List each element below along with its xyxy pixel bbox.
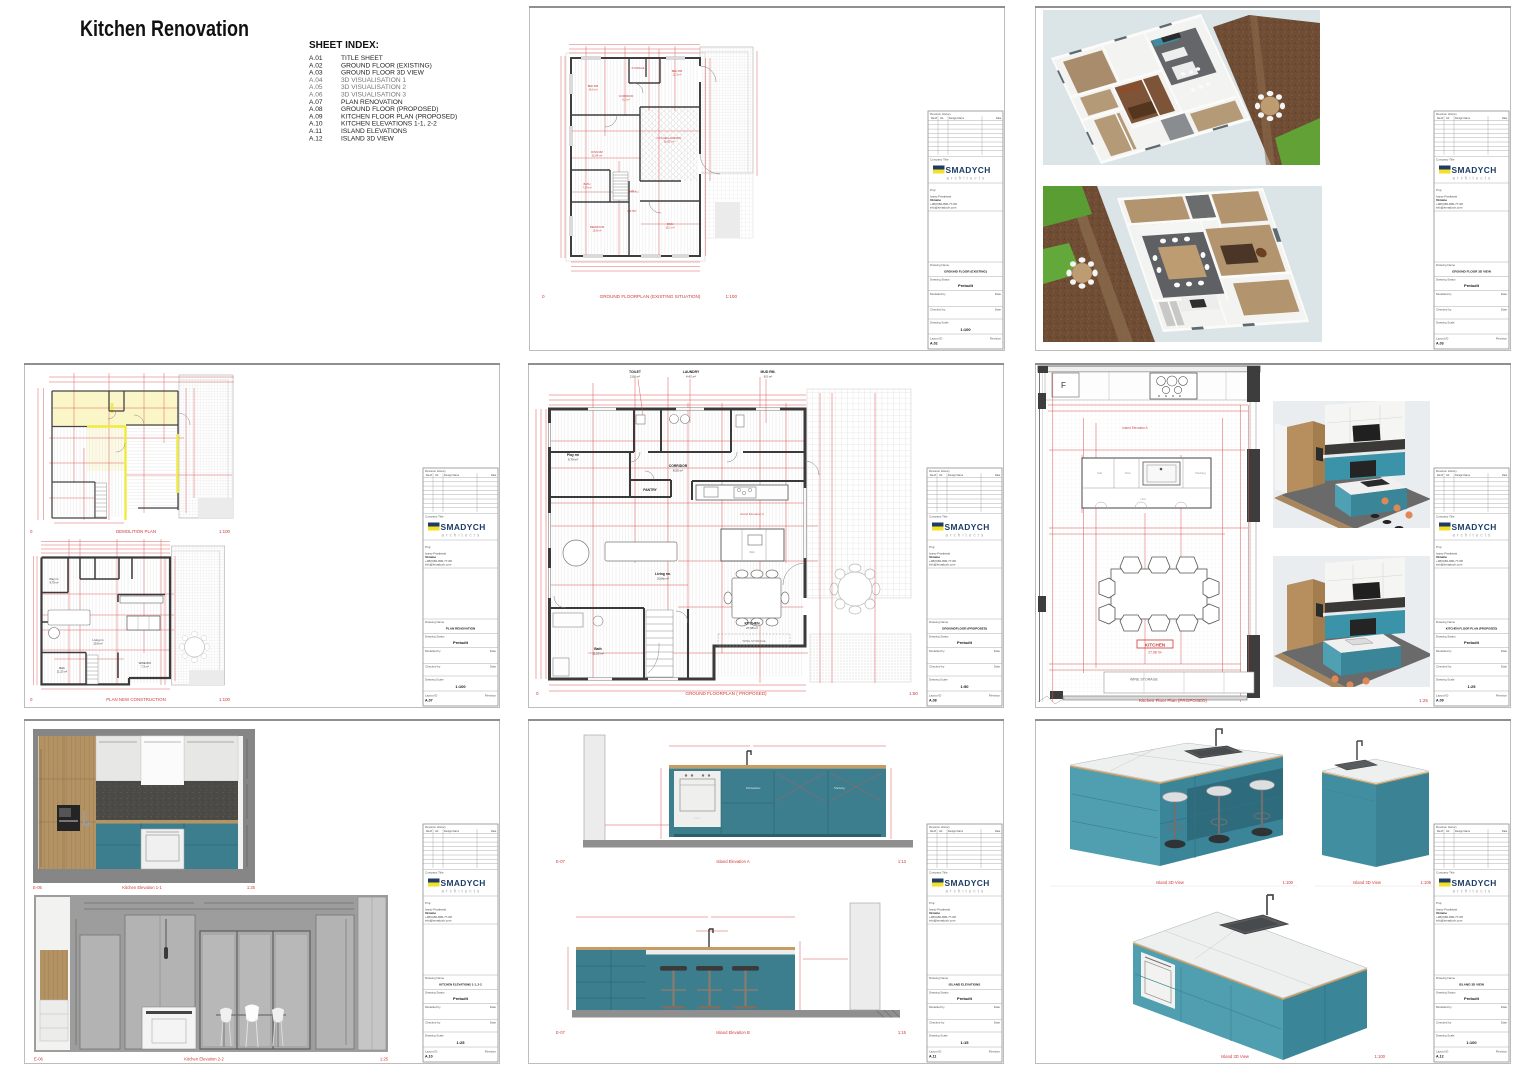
svg-text:WINE STORAGE: WINE STORAGE <box>1130 678 1158 682</box>
svg-text:GROUNDFLOOR (PROPOSED): GROUNDFLOOR (PROPOSED) <box>942 627 987 631</box>
svg-text:1:100: 1:100 <box>1466 1040 1477 1045</box>
svg-text:BED RM: BED RM <box>588 84 599 88</box>
svg-text:1:25: 1:25 <box>1467 684 1476 689</box>
svg-text:BATH: BATH <box>584 182 591 186</box>
svg-text:16,82 m²: 16,82 m² <box>664 140 675 144</box>
svg-text:0: 0 <box>536 691 539 696</box>
svg-text:Sink: Sink <box>749 550 755 554</box>
svg-text:8,5 m²: 8,5 m² <box>764 375 773 379</box>
svg-text:21,84 m²: 21,84 m² <box>592 154 603 158</box>
svg-text:KITCHEN ELEVATIONS 1-1, 2-2: KITCHEN ELEVATIONS 1-1, 2-2 <box>341 121 437 128</box>
svg-text:A.04: A.04 <box>309 77 323 84</box>
svg-text:1:100: 1:100 <box>455 684 466 689</box>
svg-text:KITCHEN+DINNING: KITCHEN+DINNING <box>657 136 682 140</box>
svg-text:Island Elevation A: Island Elevation A <box>716 859 749 864</box>
svg-text:6,2 m²: 6,2 m² <box>622 98 630 102</box>
svg-text:A.11: A.11 <box>309 128 322 135</box>
svg-text:E-07: E-07 <box>556 1030 566 1035</box>
svg-text:4,42 m²: 4,42 m² <box>686 375 696 379</box>
svg-text:F: F <box>1061 381 1066 390</box>
svg-text:1:50: 1:50 <box>909 691 918 696</box>
svg-text:16,8 m²: 16,8 m² <box>592 229 601 233</box>
svg-text:Island Elevation A: Island Elevation A <box>740 512 764 516</box>
svg-text:1:13: 1:13 <box>898 859 907 864</box>
svg-text:1:25: 1:25 <box>456 1040 465 1045</box>
svg-text:1:25: 1:25 <box>380 1057 389 1062</box>
svg-text:A.07: A.07 <box>425 699 433 703</box>
svg-text:A.12: A.12 <box>1436 1055 1444 1059</box>
svg-text:A.08: A.08 <box>929 699 937 703</box>
svg-text:Dish: Dish <box>1125 471 1131 475</box>
svg-text:1:25: 1:25 <box>247 885 256 890</box>
svg-text:A.10: A.10 <box>309 121 323 128</box>
svg-text:1:100: 1:100 <box>219 529 231 534</box>
svg-text:11,3 m²: 11,3 m² <box>673 73 682 77</box>
svg-text:Island 3D View: Island 3D View <box>1353 880 1382 885</box>
svg-text:Living rm.: Living rm. <box>655 572 671 576</box>
svg-text:Living rm: Living rm <box>93 638 105 642</box>
svg-text:WINE STORAGE: WINE STORAGE <box>742 639 765 643</box>
svg-text:A.05: A.05 <box>309 84 323 91</box>
svg-text:Island 3D View: Island 3D View <box>1156 880 1185 885</box>
svg-text:A.03: A.03 <box>1436 342 1444 346</box>
svg-text:Bath: Bath <box>59 666 65 670</box>
svg-text:GROUND FLOORPLAN ( PROPOSED): GROUND FLOORPLAN ( PROPOSED) <box>685 691 767 696</box>
svg-text:7,3 m²: 7,3 m² <box>141 665 149 669</box>
svg-text:GROUND FLOOR (EXISTING): GROUND FLOOR (EXISTING) <box>341 62 432 69</box>
svg-text:0: 0 <box>542 294 545 299</box>
svg-text:DINN: DINN <box>667 222 674 226</box>
svg-text:Dishwasher: Dishwasher <box>746 786 761 790</box>
svg-text:DEMOLITION PLAN: DEMOLITION PLAN <box>116 529 156 534</box>
svg-text:TOILET: TOILET <box>629 370 642 374</box>
svg-text:1:15: 1:15 <box>960 1040 969 1045</box>
svg-text:GROUND FLOORPLAN (EXISTING SIT: GROUND FLOORPLAN (EXISTING SITUATION) <box>600 294 701 299</box>
svg-text:ENTRY: ENTRY <box>627 209 636 213</box>
svg-text:CORRIDOR: CORRIDOR <box>669 464 688 468</box>
svg-text:15,2 m²: 15,2 m² <box>665 226 674 230</box>
svg-text:PLAN RENOVATION: PLAN RENOVATION <box>341 99 403 106</box>
svg-text:1:100: 1:100 <box>726 294 738 299</box>
svg-text:Cab.: Cab. <box>1097 471 1103 475</box>
svg-text:PLAN RENOVATION: PLAN RENOVATION <box>446 627 476 631</box>
svg-text:27,98 m²: 27,98 m² <box>1148 651 1162 655</box>
svg-text:ISLAND 3D VIEW: ISLAND 3D VIEW <box>1459 983 1484 987</box>
svg-text:ISLAND 3D VIEW: ISLAND 3D VIEW <box>341 135 395 142</box>
svg-text:Kitchen Elevation 2-2: Kitchen Elevation 2-2 <box>184 1057 224 1062</box>
svg-text:Kitchen Floor Plan (PROPOSED): Kitchen Floor Plan (PROPOSED) <box>1139 698 1207 703</box>
svg-text:1:100: 1:100 <box>1375 1054 1386 1059</box>
svg-text:1:15: 1:15 <box>898 1030 907 1035</box>
svg-text:PANTRY: PANTRY <box>643 488 657 492</box>
svg-text:KITCHEN: KITCHEN <box>744 622 760 626</box>
svg-text:KITCHEN ELEVATIONS 1-1, 2-2: KITCHEN ELEVATIONS 1-1, 2-2 <box>439 983 482 987</box>
svg-text:A.10: A.10 <box>425 1055 433 1059</box>
svg-text:Island Elevation B: Island Elevation B <box>716 1030 750 1035</box>
svg-text:Island Elevation A: Island Elevation A <box>1122 426 1148 430</box>
svg-text:Kitchen Elevation 1-1: Kitchen Elevation 1-1 <box>122 885 162 890</box>
svg-text:BED RM: BED RM <box>672 69 683 73</box>
svg-text:ISLAND ELEVATIONS: ISLAND ELEVATIONS <box>949 983 981 987</box>
svg-text:Island 3D View: Island 3D View <box>1221 1054 1250 1059</box>
svg-text:WINE RM.: WINE RM. <box>139 661 152 665</box>
svg-text:STORAGE: STORAGE <box>631 66 644 70</box>
svg-text:PLAN NEW CONSTRUCTION: PLAN NEW CONSTRUCTION <box>106 697 166 702</box>
svg-text:Play rm: Play rm <box>49 577 59 581</box>
svg-text:A.03: A.03 <box>309 70 323 77</box>
svg-text:2,06 m²: 2,06 m² <box>630 375 640 379</box>
svg-text:HALL: HALL <box>630 189 637 193</box>
svg-text:A.11: A.11 <box>929 1055 936 1059</box>
svg-text:A.09: A.09 <box>309 113 323 120</box>
svg-text:1:100: 1:100 <box>960 327 971 332</box>
svg-text:GROUND FLOOR (PROPOSED): GROUND FLOOR (PROPOSED) <box>341 106 438 113</box>
svg-text:A.02: A.02 <box>930 342 938 346</box>
svg-text:Shelving: Shelving <box>1195 471 1206 475</box>
svg-text:20,8a m²: 20,8a m² <box>657 577 669 581</box>
svg-text:Bath: Bath <box>594 647 602 651</box>
svg-text:9,79 m²: 9,79 m² <box>49 581 58 585</box>
svg-text:14,6 m²: 14,6 m² <box>588 88 597 92</box>
svg-text:A.02: A.02 <box>309 62 323 69</box>
svg-text:1:50: 1:50 <box>960 684 969 689</box>
svg-text:3D VISUALISATION 1: 3D VISUALISATION 1 <box>341 77 406 84</box>
svg-text:KITCHEN: KITCHEN <box>1145 643 1166 648</box>
svg-text:CORRIDOR: CORRIDOR <box>619 94 634 98</box>
svg-text:9,79 m²: 9,79 m² <box>568 458 578 462</box>
svg-text:Oven: Oven <box>693 816 701 820</box>
svg-text:SHEET INDEX:: SHEET INDEX: <box>309 40 379 51</box>
svg-text:1:25: 1:25 <box>1419 698 1428 703</box>
svg-text:GROUND FLOOR (EXISTING): GROUND FLOOR (EXISTING) <box>944 270 987 274</box>
svg-text:TITLE SHEET: TITLE SHEET <box>341 55 383 62</box>
svg-text:3D VISUALISATION 2: 3D VISUALISATION 2 <box>341 84 406 91</box>
svg-text:Unit: Unit <box>1141 497 1146 501</box>
svg-text:3D VISUALISATION 3: 3D VISUALISATION 3 <box>341 92 406 99</box>
svg-text:11,23 m²: 11,23 m² <box>57 670 68 674</box>
svg-text:Kitchen Renovation: Kitchen Renovation <box>80 16 249 41</box>
svg-text:27,98 m²: 27,98 m² <box>746 626 758 630</box>
svg-text:A.06: A.06 <box>309 92 323 99</box>
svg-text:DINN RM: DINN RM <box>591 150 603 154</box>
svg-text:GROUND FLOOR 3D VIEW: GROUND FLOOR 3D VIEW <box>341 70 425 77</box>
svg-text:1:105: 1:105 <box>1421 880 1432 885</box>
svg-text:20,8 m²: 20,8 m² <box>93 642 102 646</box>
svg-text:KITCHEN FLOOR PLAN (PROPOSED): KITCHEN FLOOR PLAN (PROPOSED) <box>341 113 457 120</box>
svg-text:GROUND FLOOR 3D VIEW: GROUND FLOOR 3D VIEW <box>1452 270 1491 274</box>
svg-text:ISLAND ELEVATIONS: ISLAND ELEVATIONS <box>341 128 408 135</box>
svg-text:E-05: E-05 <box>33 885 43 890</box>
svg-text:A.08: A.08 <box>309 106 323 113</box>
svg-text:BEDROOM: BEDROOM <box>590 225 605 229</box>
svg-text:E-07: E-07 <box>556 859 566 864</box>
svg-text:Shelving: Shelving <box>834 786 845 790</box>
svg-text:A.07: A.07 <box>309 99 323 106</box>
svg-text:A.09: A.09 <box>1436 699 1444 703</box>
svg-text:11,23 m²: 11,23 m² <box>592 652 604 656</box>
svg-text:E-06: E-06 <box>34 1057 44 1062</box>
svg-text:Play rm: Play rm <box>567 453 579 457</box>
svg-text:8,55 m²: 8,55 m² <box>673 469 683 473</box>
svg-text:KITCHEN FLOOR PLAN (PROPOSED): KITCHEN FLOOR PLAN (PROPOSED) <box>1446 627 1498 631</box>
svg-text:1:100: 1:100 <box>219 697 231 702</box>
svg-text:A.01: A.01 <box>309 55 323 62</box>
svg-text:7,34 m²: 7,34 m² <box>582 186 591 190</box>
svg-text:1:100: 1:100 <box>1283 880 1294 885</box>
svg-text:A.12: A.12 <box>309 135 323 142</box>
svg-text:MUD RM.: MUD RM. <box>761 370 776 374</box>
svg-text:LAUNDRY: LAUNDRY <box>683 370 700 374</box>
